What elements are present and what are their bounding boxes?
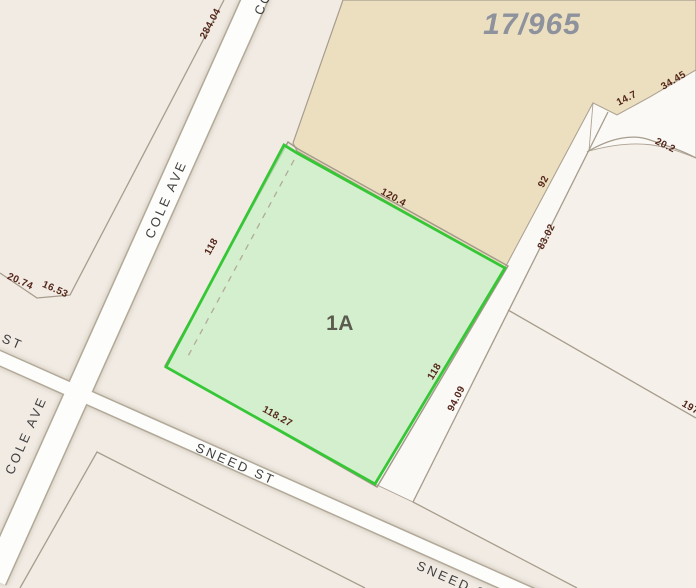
parcel-map-viewport: 17/965 1A COLE AVE COLE AVE COLE AVE ST …: [0, 0, 696, 588]
selected-parcel-label: 1A: [326, 312, 354, 335]
parcel-map: 17/965 1A COLE AVE COLE AVE COLE AVE ST …: [0, 0, 696, 588]
plat-reference-label: 17/965: [483, 8, 581, 41]
